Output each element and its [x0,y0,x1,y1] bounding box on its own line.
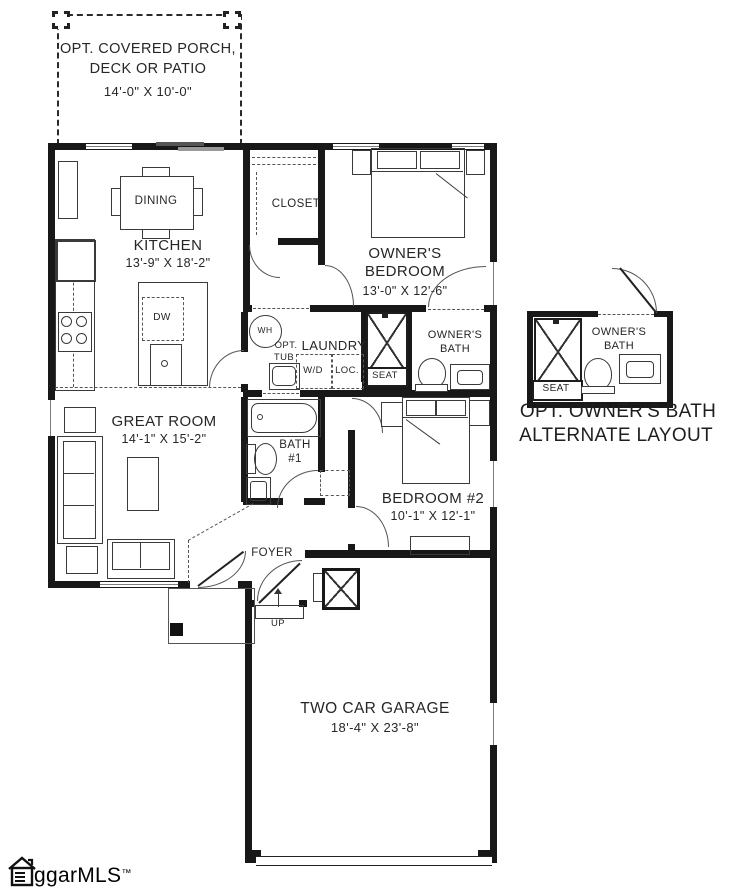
pillow [377,151,417,169]
bath1-label: #1 [288,454,302,466]
laundry-closet-label: LOC. [335,366,359,376]
porch-label: DECK OR PATIO [90,62,207,77]
sofa-cushions [63,441,96,539]
closet-shelf [252,157,316,158]
garage-label: TWO CAR GARAGE [300,701,449,717]
wall [243,143,250,312]
owners-bedroom-label: BEDROOM [365,264,445,279]
toilet [254,443,277,475]
sink-basin [250,481,267,501]
shower-head [382,313,388,318]
porch-post [52,11,70,29]
alt-shower [534,318,582,386]
washer-dryer-label: W/D [303,366,323,376]
burner [76,333,87,344]
great-room-label: GREAT ROOM [111,414,216,429]
window [100,582,178,587]
side-table [64,407,96,433]
porch-label: OPT. COVERED PORCH, [60,42,236,57]
door-arc [356,506,389,547]
logo-text: ggarMLS [34,864,121,888]
alt-sink-basin [626,361,654,378]
window [47,400,55,436]
floor-plan: OPT. COVERED PORCH, DECK OR PATIO 14'-0"… [0,0,733,892]
closet-shelf [252,164,316,165]
shower-seat-label: SEAT [372,371,398,381]
porch-post [223,11,241,29]
loveseat-cushions [112,542,170,570]
door-arc [209,350,244,388]
tub-drain [257,414,263,420]
foyer-boundary [188,503,254,541]
bedroom2-dims: 10'-1" X 12'-1" [391,510,476,523]
bath1-label: BATH [279,440,310,452]
logo: ggarMLS ™ [6,854,131,888]
refrigerator [56,240,96,282]
opt-tub-label: TUB [274,353,294,363]
window [490,461,497,507]
pantry-cabinet [58,161,78,219]
opt-tub-label: OPT. [275,341,298,351]
toilet-base [415,384,448,392]
wall [348,430,355,508]
garage-dims: 18'-4" X 23'-8" [331,721,419,734]
alt-shower-head [553,319,559,324]
burner [76,316,87,327]
door-arc [352,398,383,433]
opening-header [263,393,299,394]
wall [348,544,355,550]
burner [61,316,72,327]
door-arc [249,245,280,278]
dining-label: DINING [135,196,178,208]
alt-toilet-base [581,386,615,394]
window [490,703,497,745]
porch-column [170,623,183,636]
closet-label: CLOSET [272,199,320,211]
water-heater-label: WH [258,326,273,335]
opt-tub-basin [272,366,296,386]
laundry-label: LAUNDRY [302,339,367,352]
door-opening [250,238,278,245]
window [490,262,497,306]
side-table [66,546,98,574]
cushion-line [140,542,141,568]
sliding-door [178,147,224,151]
garage-door [256,856,492,866]
bedroom2-label: BEDROOM #2 [382,491,484,506]
stair-tread [255,605,304,619]
mechanical-closet [322,568,360,610]
logo-tm: ™ [121,868,131,879]
owners-bath-label: OWNER'S [428,330,482,341]
window [86,144,132,149]
nightstand [469,400,490,426]
door-arc [325,265,354,306]
stair-arrow-head [274,588,282,594]
dishwasher-label: DW [153,313,170,323]
porch-dims: 14'-0" X 10'-0" [104,85,192,98]
nightstand [352,150,371,175]
opening-header [253,308,309,309]
faucet [161,360,168,367]
foyer-label: FOYER [251,548,293,560]
blanket-line [371,171,463,172]
wall [48,143,55,588]
owners-bedroom-label: OWNER'S [368,246,441,261]
foyer-boundary [188,540,189,583]
nightstand [381,402,403,427]
porch-outline [57,14,242,145]
coffee-table [127,457,159,511]
linen-closet [320,470,350,496]
pillow [420,151,460,169]
nightstand [466,150,485,175]
opening-header [428,309,484,310]
kitchen-label: KITCHEN [134,238,203,253]
shower [366,312,408,374]
owners-bath-label: BATH [440,344,470,355]
great-room-dims: 14'-1" X 15'-2" [122,433,207,446]
alt-seat-label: SEAT [543,384,570,394]
alt-caption: OPT. OWNER'S BATH [520,402,716,421]
burner [61,333,72,344]
cushion-line [63,505,94,506]
sink-basin [457,370,483,385]
cushion-line [63,473,94,474]
closet-rod [256,172,257,235]
alt-bath-label: OWNER'S [592,327,646,338]
pillow [436,400,466,416]
alt-caption: ALTERNATE LAYOUT [519,426,713,445]
alt-door-header [598,314,654,315]
sliding-door [156,142,204,146]
kitchen-dims: 13'-9" X 18'-2" [126,257,211,270]
wall [241,312,248,352]
door-arc [277,470,318,508]
alt-bath-label: BATH [604,341,634,352]
pillow [406,400,436,416]
dresser [410,536,470,555]
stair-arrow [278,593,279,607]
blanket-line [402,417,468,418]
up-label: UP [271,619,285,629]
